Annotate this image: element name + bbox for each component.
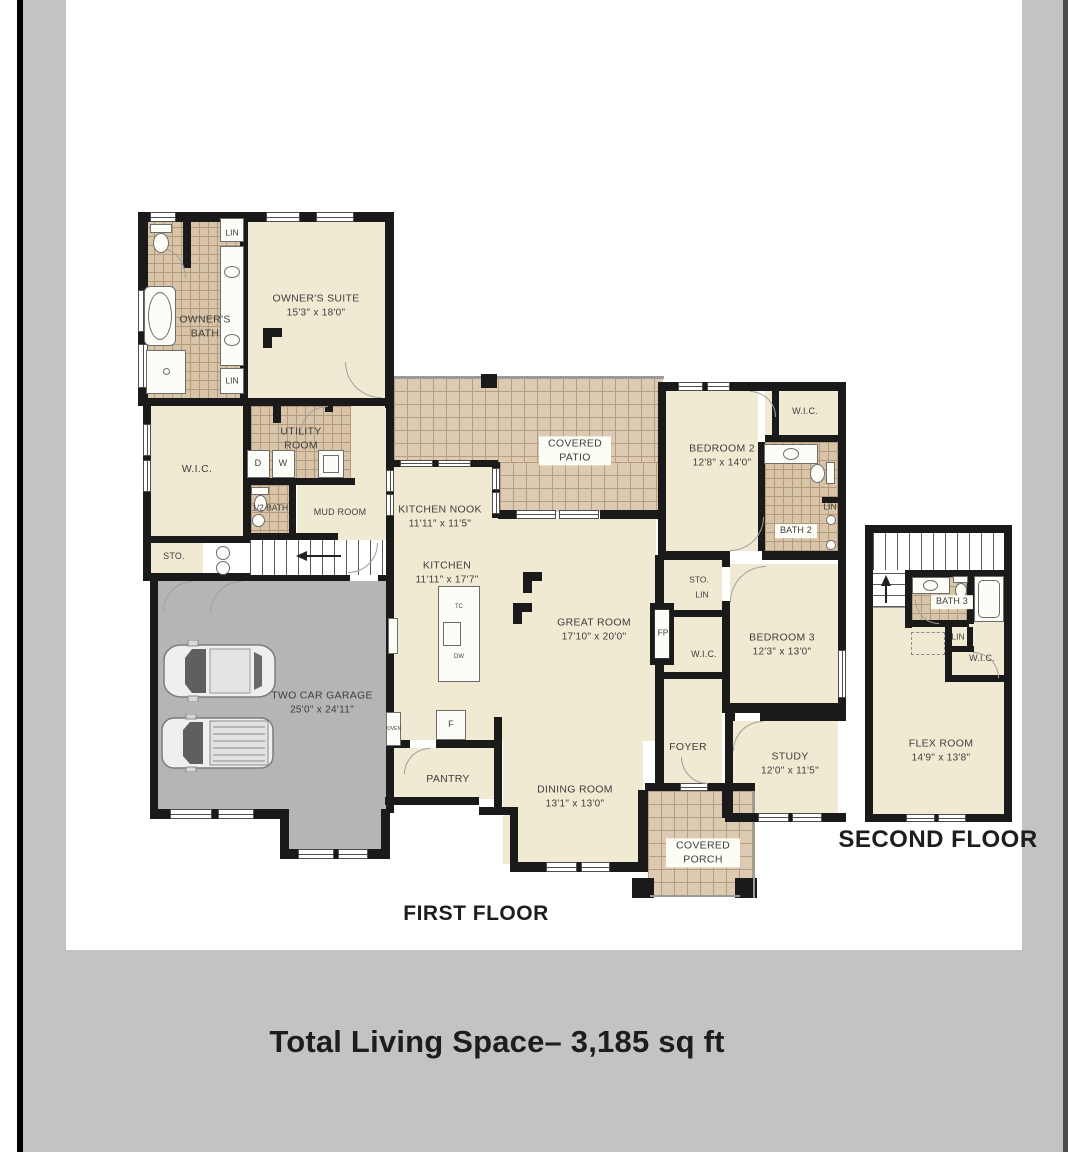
label-owners-bath: OWNER'S BATH [173, 313, 237, 340]
wall [865, 525, 1012, 533]
stairs-second-upper [873, 533, 1004, 570]
label-lin2: LIN [951, 631, 964, 642]
water-heater [216, 561, 230, 575]
wall [280, 849, 390, 859]
floor-plan-page: LIN OWNER'S BATH LIN OWNER'S SUITE 15'3"… [0, 0, 1068, 1152]
label-wic-bed3: W.I.C. [691, 649, 717, 661]
window [143, 460, 151, 492]
label-fireplace: FP [658, 627, 669, 638]
right-border-line [1063, 0, 1068, 1152]
label-lin: LIN [225, 375, 238, 386]
label-bedroom3: BEDROOM 3 12'3" x 13'0" [749, 632, 815, 659]
label-washer: W [279, 458, 288, 470]
window [707, 382, 730, 391]
wall [143, 536, 251, 543]
hall-strip-floor [351, 406, 388, 485]
window [758, 813, 789, 822]
label-dining: DINING ROOM 13'1" x 13'0" [537, 784, 613, 811]
label-study: STUDY 12'0" x 11'5" [761, 751, 819, 778]
label-bedroom2: BEDROOM 2 12'8" x 14'0" [689, 443, 755, 470]
label-covered-porch: COVERED PORCH [666, 838, 740, 867]
label-great-room: GREAT ROOM 17'10" x 20'0" [557, 617, 631, 644]
sink [224, 266, 240, 278]
label-tc: TC [455, 604, 463, 612]
post-mark [263, 328, 282, 337]
car-truck [160, 714, 275, 772]
label-lin-bath2: LIN [823, 501, 836, 512]
wall [645, 783, 680, 791]
toilet-tank [953, 576, 968, 583]
post-mark [513, 603, 532, 612]
sink [783, 448, 799, 460]
toilet-tank [251, 487, 269, 495]
post-mark [523, 572, 542, 581]
window [581, 862, 610, 872]
stairs-arrow-shaft [885, 585, 887, 603]
post-mark [513, 612, 522, 624]
wall [494, 717, 502, 813]
window [546, 862, 577, 872]
label-sto-hall: STO. [689, 574, 709, 585]
label-storage: STO. [163, 551, 185, 563]
bathtub-basin [978, 580, 1000, 618]
wall [658, 382, 666, 560]
wall [273, 398, 281, 423]
window [559, 510, 599, 519]
window [492, 468, 500, 490]
car-suv [162, 640, 277, 702]
patio-floor-lower [500, 462, 663, 512]
window [492, 492, 500, 514]
label-dryer: D [255, 458, 262, 470]
sink [923, 580, 938, 591]
patio-edge [394, 376, 664, 379]
porch-edge [753, 791, 755, 898]
window [143, 424, 151, 456]
label-covered-patio: COVERED PATIO [539, 436, 611, 465]
stairs-direction-arrow [296, 551, 307, 561]
vanity [220, 246, 244, 366]
label-fridge: F [448, 719, 454, 731]
porch-edge [650, 895, 740, 897]
label-foyer: FOYER [669, 741, 707, 755]
front-door [680, 783, 708, 791]
window [150, 212, 176, 222]
label-bath2: BATH 2 [775, 524, 817, 538]
water-heater [216, 546, 230, 560]
label-wic-owner: W.I.C. [182, 463, 212, 477]
label-bath3: BATH 3 [931, 595, 973, 609]
island-sink [443, 622, 461, 646]
label-utility-room: UTILITY ROOM [272, 425, 330, 452]
attic-access [911, 632, 945, 655]
wall [865, 525, 873, 822]
window [792, 813, 822, 822]
label-wic2f: W.I.C. [969, 653, 995, 665]
label-flex-room: FLEX ROOM 14'9" x 13'8" [909, 738, 974, 765]
label-garage: TWO CAR GARAGE 25'0" x 24'11" [271, 690, 373, 717]
post-mark [263, 337, 272, 348]
wall [655, 700, 664, 790]
wall [510, 862, 647, 872]
label-lin-hall: LIN [695, 589, 708, 600]
wall [600, 510, 663, 519]
utility-sink-basin [323, 455, 339, 473]
label-mud-room: MUD ROOM [314, 507, 367, 519]
wall [150, 577, 158, 817]
label-owners-suite: OWNER'S SUITE 15'3" x 18'0" [273, 293, 360, 320]
label-kitchen: KITCHEN 11'11" x 17'7" [415, 560, 478, 587]
wall [664, 610, 722, 617]
label-pantry: PANTRY [426, 773, 469, 787]
label-oven: OVEN [387, 726, 401, 733]
window [386, 470, 394, 492]
stairs-arrow-shaft [307, 555, 341, 557]
garage-door [218, 809, 254, 819]
wall [498, 510, 516, 519]
window [316, 212, 354, 222]
shower-head [826, 540, 836, 550]
window [438, 460, 471, 467]
patio-floor-upper [394, 378, 663, 462]
garage-door [298, 849, 334, 859]
second-floor-title: SECOND FLOOR [838, 826, 1037, 854]
wall [1004, 525, 1012, 822]
wall [385, 797, 479, 805]
wall [386, 577, 394, 813]
shower-head [826, 515, 836, 525]
first-floor-title: FIRST FLOOR [403, 902, 549, 926]
kitchen-counter [388, 618, 398, 654]
window [938, 814, 966, 822]
label-half-bath: 1/2 BATH [252, 502, 288, 513]
wall [245, 478, 355, 485]
post-mark [523, 581, 532, 593]
wall [655, 663, 664, 703]
window [386, 494, 394, 516]
window [678, 382, 703, 391]
wall [722, 555, 730, 567]
wall [138, 398, 394, 406]
total-living-space: Total Living Space– 3,185 sq ft [269, 1024, 724, 1060]
wall [655, 555, 664, 605]
toilet-bowl [153, 233, 169, 253]
toilet-bowl [810, 464, 825, 483]
wall [381, 809, 390, 859]
wall [722, 601, 730, 713]
wall [658, 551, 730, 560]
window [266, 212, 300, 222]
wall [725, 713, 733, 813]
window [838, 650, 846, 698]
patio-post [481, 374, 497, 388]
wall [765, 435, 846, 442]
wall [722, 703, 846, 713]
round-sink [252, 514, 265, 527]
garage-bump-floor [288, 811, 382, 851]
wall [762, 551, 846, 560]
wall [760, 713, 846, 721]
wall [385, 212, 394, 408]
label-dw: DW [454, 654, 464, 662]
wall [638, 790, 648, 872]
bathtub-basin [148, 292, 172, 340]
label-lin: LIN [225, 227, 238, 238]
toilet-tank [826, 462, 835, 484]
window [516, 510, 556, 519]
wall [183, 222, 191, 268]
label-wic-bed2: W.I.C. [792, 406, 818, 418]
window [400, 460, 433, 467]
wall [664, 672, 722, 679]
label-kitchen-nook: KITCHEN NOOK 11'11" x 11'5" [398, 504, 482, 531]
garage-door [338, 849, 368, 859]
garage-door [170, 809, 212, 819]
wall [436, 740, 496, 748]
wall [967, 627, 973, 651]
window [906, 814, 935, 822]
wall [245, 533, 338, 540]
toilet-tank [150, 224, 172, 233]
shower-head [163, 368, 170, 375]
